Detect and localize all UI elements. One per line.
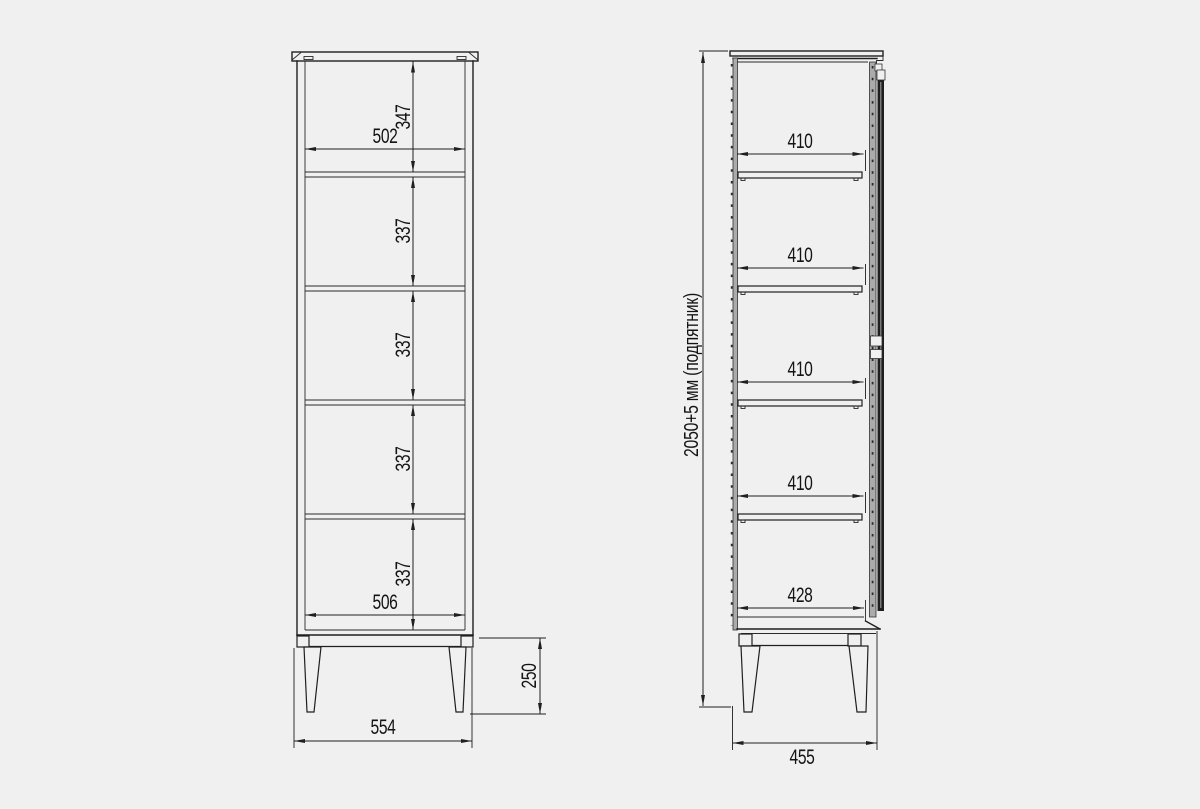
- shelf: [738, 514, 862, 520]
- dim-label-compartment-5: 337: [392, 562, 415, 587]
- shelf: [738, 400, 862, 406]
- front-right-leg: [449, 647, 466, 712]
- dim-label-compartment-3: 337: [392, 333, 415, 358]
- front-view: 502 506 554 347 337 337 337 337 250: [292, 52, 546, 748]
- dim-label-shelf-depth-1: 410: [788, 130, 813, 153]
- dim-label-bottom-depth: 428: [788, 584, 813, 607]
- middle-hinge: [871, 350, 883, 359]
- dim-label-leg-height: 250: [518, 664, 541, 689]
- shelf: [738, 286, 862, 292]
- drawing-canvas: 502 506 554 347 337 337 337 337 250: [0, 0, 1200, 809]
- dim-label-shelf-depth-4: 410: [788, 472, 813, 495]
- dim-label-compartment-4: 337: [392, 447, 415, 472]
- dim-label-shelf-depth-2: 410: [788, 244, 813, 267]
- top-hinge-plate: [877, 70, 885, 80]
- dim-label-inner-width-bottom: 506: [373, 591, 398, 614]
- middle-hinge: [871, 336, 883, 346]
- front-view-base: [297, 636, 473, 712]
- cabinet-technical-drawing: 502 506 554 347 337 337 337 337 250: [0, 0, 1200, 809]
- side-view: 410 410 410 410 428 455 2050+5 мм (подпя…: [681, 51, 885, 769]
- top-panel: [292, 52, 478, 61]
- dim-label-overall-depth: 455: [790, 746, 815, 769]
- side-view-dimensions: 410 410 410 410 428 455 2050+5 мм (подпя…: [681, 51, 877, 769]
- side-view-shelves: [738, 172, 862, 523]
- top-molding: [730, 51, 883, 56]
- side-view-bottom: [737, 600, 880, 712]
- dim-label-compartment-2: 337: [392, 219, 415, 244]
- shelf: [738, 172, 862, 178]
- leg-block: [848, 634, 861, 646]
- back-panel: [733, 58, 738, 630]
- side-left-leg: [741, 646, 760, 712]
- dim-label-compartment-1: 347: [392, 105, 415, 130]
- dim-label-shelf-depth-3: 410: [788, 358, 813, 381]
- leg-block: [461, 636, 473, 647]
- front-left-leg: [304, 647, 321, 712]
- dim-label-overall-width: 554: [371, 716, 397, 739]
- leg-block: [739, 634, 752, 646]
- leg-block: [297, 636, 309, 647]
- dim-label-overall-height: 2050+5 мм (подпятник): [681, 293, 703, 457]
- side-right-leg: [849, 646, 868, 712]
